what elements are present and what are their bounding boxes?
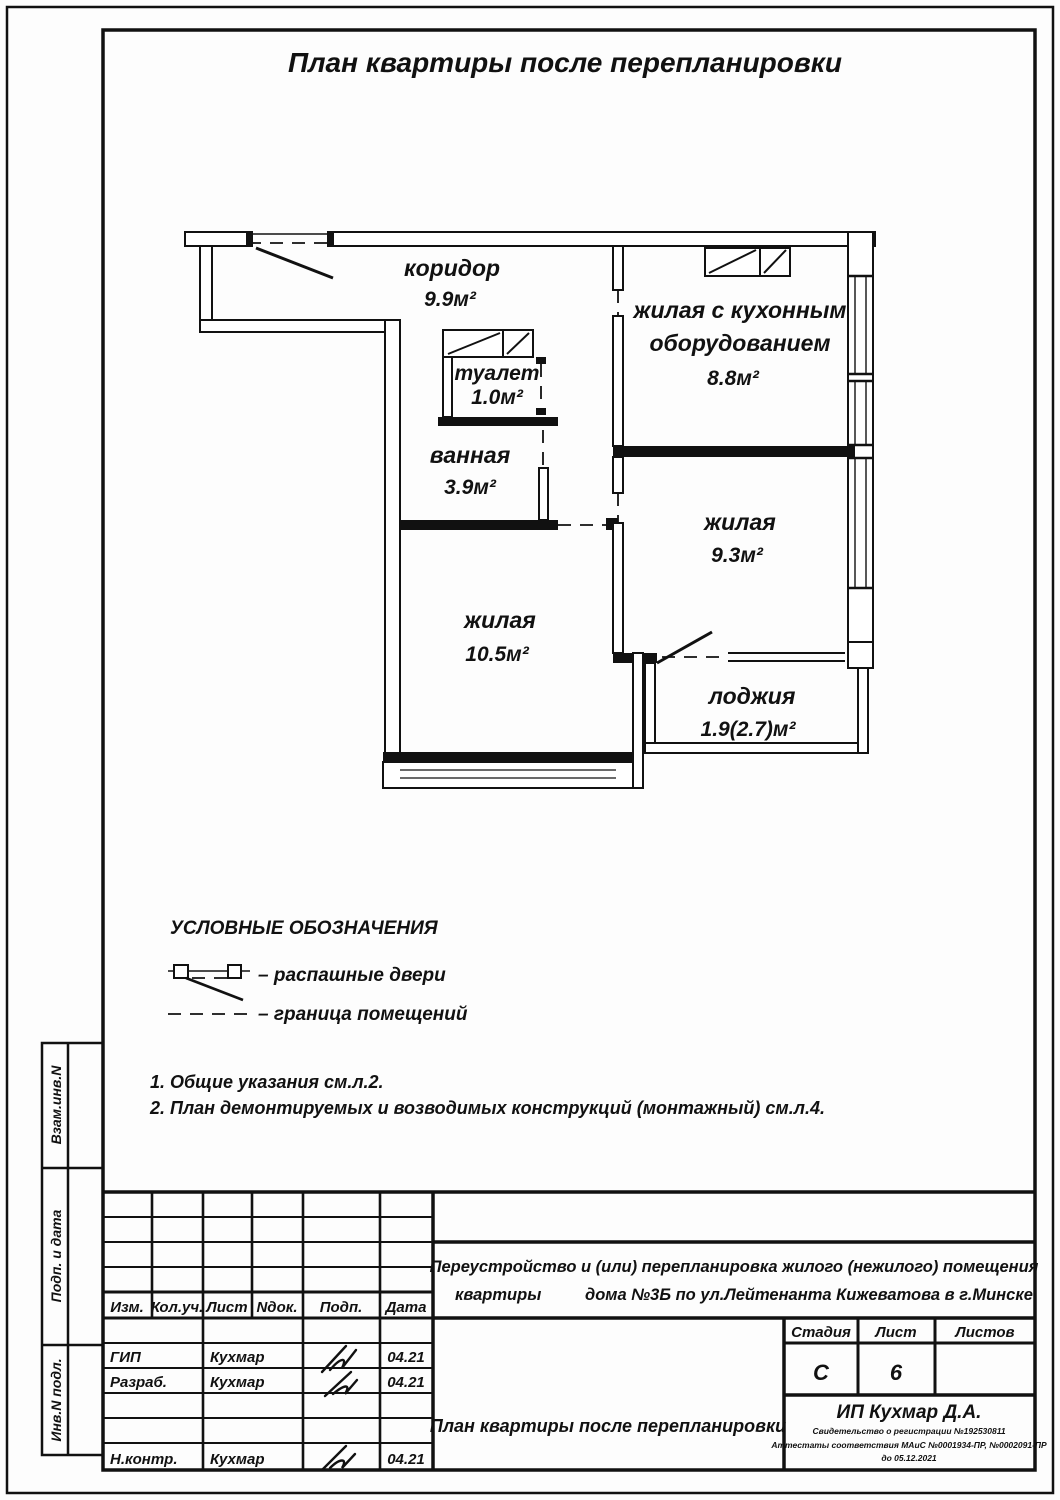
role-razrab-name: Кухмар: [210, 1374, 265, 1391]
page-title: План квартиры после перепланировки: [288, 47, 842, 78]
role-razrab-date: 04.21: [387, 1374, 425, 1391]
walls-loggia: [633, 642, 873, 788]
role-nkontr-name: Кухмар: [210, 1451, 265, 1468]
legend-room-boundary-label: – граница помещений: [258, 1004, 468, 1025]
room-living105-area: 10.5м²: [465, 643, 529, 666]
wall-corridor-left: [200, 246, 400, 758]
side-strip-label-3: Инв.N подл.: [48, 1358, 64, 1441]
org-line1: Свидетельство о регистрации №192530811: [812, 1426, 1005, 1436]
role-gip-name: Кухмар: [210, 1349, 265, 1366]
room-living93-name: жилая: [702, 509, 776, 535]
swing-door-symbol: [168, 965, 250, 1000]
drawing-name: План квартиры после перепланировки: [430, 1416, 786, 1436]
stage-value: С: [813, 1360, 830, 1385]
rev-header-koluch: Кол.уч.: [151, 1299, 204, 1316]
room-loggia-name: лоджия: [708, 683, 796, 709]
role-nkontr: Н.контр.: [110, 1451, 178, 1468]
role-gip: ГИП: [110, 1349, 142, 1366]
rev-header-ndok: Nдок.: [256, 1299, 297, 1316]
rev-header-list: Лист: [205, 1299, 247, 1316]
side-strip-label-2: Подп. и дата: [48, 1209, 64, 1302]
org-line2: Аттестаты соответствия МАиС №0001934-ПР,…: [770, 1440, 1047, 1450]
side-strip-label-1: Взам.инв.N: [48, 1065, 64, 1145]
rev-header-podp: Подп.: [320, 1299, 363, 1316]
room-toilet-name: туалет: [455, 362, 540, 385]
drawing-canvas: План квартиры после перепланировки: [0, 0, 1060, 1500]
role-nkontr-date: 04.21: [387, 1451, 425, 1468]
sheet-value: 6: [890, 1360, 903, 1385]
room-labels: коридор 9.9м² жилая с кухонным оборудова…: [404, 255, 847, 741]
wall-93-bottom: [613, 632, 845, 663]
entry-door-swing: [256, 248, 333, 278]
room-kitchen-name1: жилая с кухонным: [632, 297, 847, 323]
room-loggia-area: 1.9(2.7)м²: [701, 718, 797, 741]
role-rows: ГИП Кухмар 04.21 Разраб. Кухмар 04.21 Н.…: [110, 1349, 425, 1468]
doorway-living105: [558, 518, 618, 530]
room-living105-name: жилая: [462, 607, 536, 633]
wall-105-bottom-window: [383, 752, 633, 788]
wall-partition-88-93: [613, 446, 855, 457]
sheet-label: Лист: [874, 1324, 916, 1341]
room-toilet-area: 1.0м²: [471, 386, 524, 409]
wall-top: [185, 231, 875, 247]
legend: УСЛОВНЫЕ ОБОЗНАЧЕНИЯ – распашные двери –…: [168, 918, 468, 1025]
role-gip-date: 04.21: [387, 1349, 425, 1366]
room-kitchen-name2: оборудованием: [650, 330, 831, 356]
signatures: [322, 1346, 357, 1470]
organization-cell: ИП Кухмар Д.А. Свидетельство о регистрац…: [770, 1402, 1047, 1463]
floor-plan: коридор 9.9м² жилая с кухонным оборудова…: [185, 231, 875, 788]
role-razrab: Разраб.: [110, 1374, 167, 1391]
project-line2b: дома №3Б по ул.Лейтенанта Кижеватова в г…: [585, 1286, 1033, 1304]
org-name: ИП Кухмар Д.А.: [837, 1402, 982, 1423]
rev-header-izm: Изм.: [110, 1299, 144, 1316]
vent-block-kitchen: [705, 248, 790, 276]
legend-title: УСЛОВНЫЕ ОБОЗНАЧЕНИЯ: [170, 918, 439, 939]
title-block: Изм. Кол.уч. Лист Nдок. Подп. Дата ГИП К…: [103, 1192, 1047, 1470]
project-line1: Переустройство и (или) перепланировка жи…: [430, 1258, 1039, 1276]
side-strip: Взам.инв.N Подп. и дата Инв.N подл.: [42, 1043, 103, 1455]
drawing-sheet: План квартиры после перепланировки: [0, 0, 1060, 1500]
room-kitchen-area: 8.8м²: [707, 367, 760, 390]
legend-swing-doors-label: – распашные двери: [258, 965, 446, 986]
stage-label: Стадия: [791, 1324, 851, 1341]
project-line2a: квартиры: [455, 1286, 541, 1304]
sheets-label: Листов: [954, 1324, 1014, 1341]
note-2: 2. План демонтируемых и возводимых конст…: [149, 1098, 825, 1118]
notes: 1. Общие указания см.л.2. 2. План демонт…: [149, 1072, 825, 1118]
vent-block-toilet: [443, 330, 533, 357]
room-living93-area: 9.3м²: [711, 544, 764, 567]
room-bath-name: ванная: [430, 442, 511, 468]
rev-header-data: Дата: [384, 1299, 427, 1316]
room-bath-area: 3.9м²: [444, 476, 497, 499]
room-corridor-area: 9.9м²: [424, 288, 477, 311]
org-line3: до 05.12.2021: [881, 1453, 937, 1463]
note-1: 1. Общие указания см.л.2.: [150, 1072, 384, 1092]
room-corridor-name: коридор: [404, 255, 500, 281]
